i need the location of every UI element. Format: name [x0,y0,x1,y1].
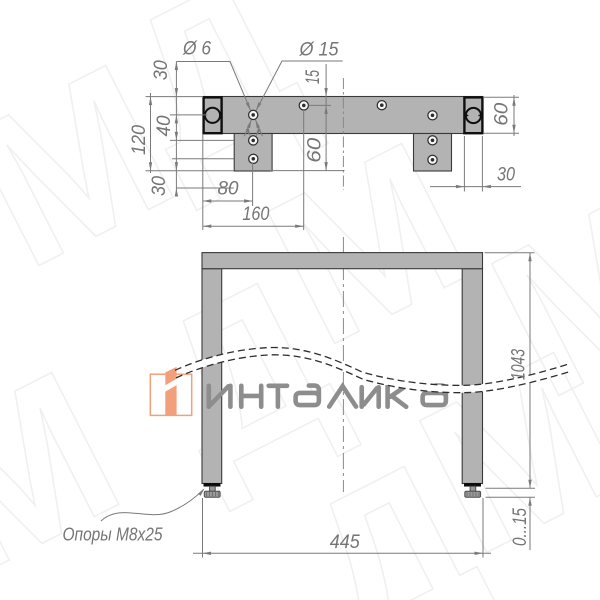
svg-text:15: 15 [303,70,324,84]
svg-text:30: 30 [149,176,170,196]
svg-text:1043: 1043 [509,349,530,380]
svg-text:445: 445 [330,532,360,553]
svg-text:0...15: 0...15 [510,508,531,546]
svg-text:Ø 15: Ø 15 [299,40,339,61]
svg-text:40: 40 [154,115,175,136]
svg-text:80: 80 [218,179,239,200]
svg-text:160: 160 [242,204,269,225]
svg-text:120: 120 [129,125,150,155]
svg-text:30: 30 [497,165,515,186]
svg-text:Опоры М8х25: Опоры М8х25 [63,524,164,545]
svg-text:60: 60 [305,137,326,163]
svg-text:30: 30 [151,60,172,80]
svg-text:Ø 6: Ø 6 [182,39,211,60]
svg-text:60: 60 [492,102,513,125]
